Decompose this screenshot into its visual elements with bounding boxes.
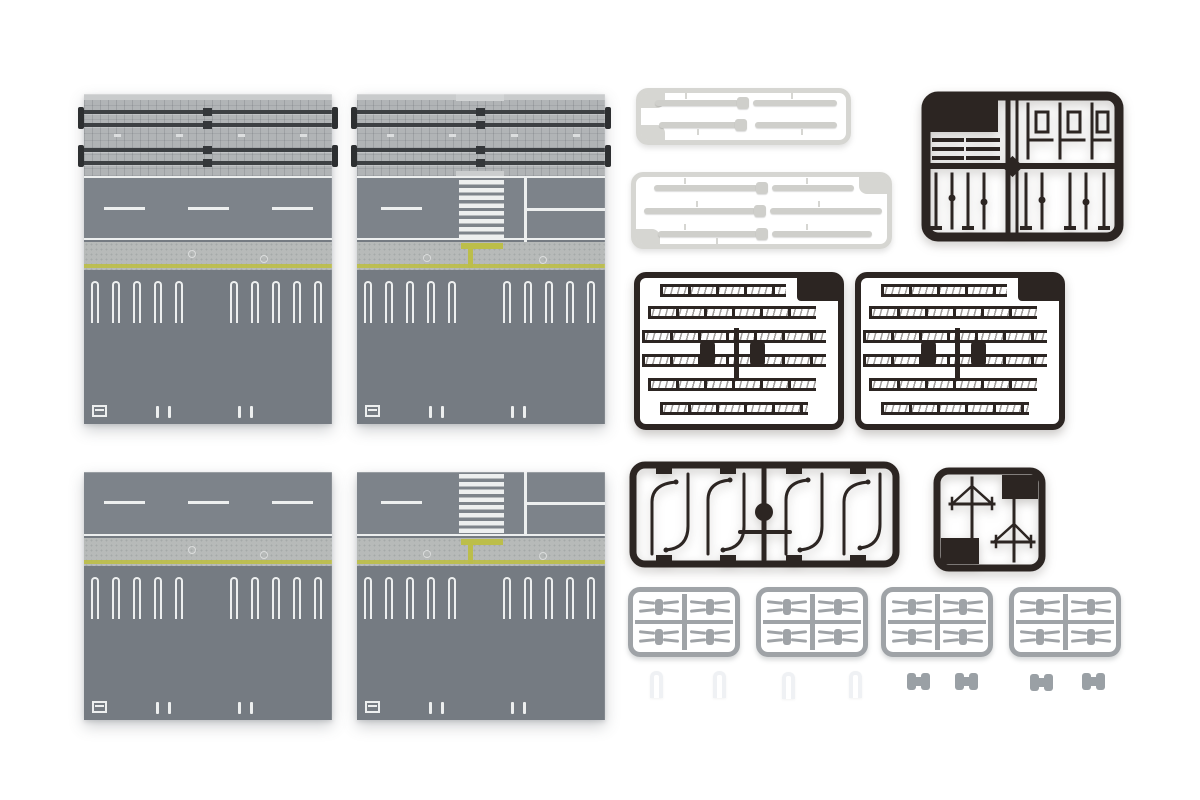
clip-arm <box>689 638 705 642</box>
clip-part <box>766 626 808 648</box>
clip-arm <box>942 600 958 604</box>
guardrail-connector <box>735 119 747 131</box>
clip-arm <box>1019 608 1035 612</box>
edge-tick <box>250 702 253 714</box>
track-dash <box>176 134 183 137</box>
guardrail-part <box>755 122 837 128</box>
road-plate-tracks-crosswalk <box>357 94 605 424</box>
clip-arm <box>1094 630 1110 634</box>
clip-arm <box>790 638 806 642</box>
clip-arm <box>662 630 678 634</box>
clip-arm <box>1070 600 1086 604</box>
clip-arm <box>713 608 729 612</box>
track-dash <box>114 134 121 137</box>
fence-part-row <box>881 284 1007 297</box>
parking-stall-marking <box>272 281 280 323</box>
clip-body <box>834 599 842 615</box>
centerline-dash <box>381 207 422 210</box>
parking-stall-group <box>364 281 456 323</box>
joiner-center <box>961 677 972 686</box>
edge-tick-pair <box>156 702 171 714</box>
manhole-cover <box>539 256 547 264</box>
clip-arm <box>662 600 678 604</box>
rail-joint <box>203 121 212 129</box>
track-dash <box>573 134 580 137</box>
gray-joiner-part <box>955 673 978 690</box>
guardrail-part <box>654 185 758 191</box>
clip-part <box>689 626 731 648</box>
parking-stall-marking <box>112 281 120 323</box>
sprue-dark-accessories <box>920 90 1125 243</box>
clip-arm <box>966 600 982 604</box>
clip-body <box>783 629 791 645</box>
centerline-dash <box>188 207 229 210</box>
parking-stall-marking <box>230 281 238 323</box>
crosswalk <box>459 180 504 239</box>
edge-tick <box>511 702 514 714</box>
clip-arm <box>942 630 958 634</box>
clip-arm <box>841 630 857 634</box>
guardrail-part <box>658 231 758 237</box>
guardrail-part <box>659 122 741 128</box>
clip-body <box>706 599 714 615</box>
centerline <box>104 207 313 210</box>
rail-joiner-nub <box>332 145 338 167</box>
clip-part <box>817 596 859 618</box>
plate-info-mark <box>365 701 380 713</box>
parking-stall-marking <box>503 577 511 619</box>
between-track-marks <box>387 134 580 137</box>
clip-arm <box>766 608 782 612</box>
road-plate-straight <box>84 472 332 720</box>
parking-stall-marking <box>364 577 372 619</box>
sprue-corner-block <box>797 277 839 301</box>
rail-joiner-nub <box>605 145 611 167</box>
edge-tick <box>429 406 432 418</box>
centerline <box>104 501 313 504</box>
parking-stall-marking <box>154 577 162 619</box>
parking-stall-marking <box>524 577 532 619</box>
parking-stall-marking <box>587 577 595 619</box>
edge-tick-pair <box>511 406 526 418</box>
clip-part <box>942 626 984 648</box>
sprue-stub <box>818 201 820 207</box>
joiner-center <box>913 677 924 686</box>
parking-lot <box>357 566 605 720</box>
plate-info-mark <box>92 701 107 713</box>
sprue-corner-gusset <box>636 229 660 244</box>
clip-body <box>959 629 967 645</box>
edge-tick <box>156 406 159 418</box>
clip-arm <box>891 638 907 642</box>
edge-tick <box>523 702 526 714</box>
clip-arm <box>1043 600 1059 604</box>
manhole-cover <box>188 250 196 258</box>
street-section <box>84 472 332 720</box>
edge-tick <box>441 406 444 418</box>
rail-joiner-nub <box>78 107 84 129</box>
track-section <box>84 94 332 176</box>
track-dash <box>387 134 394 137</box>
sprue-stub <box>684 224 686 230</box>
clip-arm <box>1070 608 1086 612</box>
parking-stall-marking <box>251 281 259 323</box>
guardrail-connector <box>737 97 749 109</box>
clip-arm <box>713 638 729 642</box>
track-dash <box>238 134 245 137</box>
clip-arm <box>841 608 857 612</box>
parking-stall-marking <box>448 577 456 619</box>
sprue-stub <box>685 93 687 99</box>
clip-arm <box>915 608 931 612</box>
rail-joint <box>476 108 485 116</box>
sprue-stub <box>801 129 803 135</box>
clip-part <box>942 596 984 618</box>
clip-arm <box>891 608 907 612</box>
parking-stall-marking <box>524 281 532 323</box>
gray-joiner-part <box>1030 674 1053 691</box>
clip-arm <box>1043 608 1059 612</box>
clip-arm <box>689 600 705 604</box>
clip-arm <box>1070 638 1086 642</box>
sprue-dark-fence-lattice <box>634 272 844 430</box>
clip-body <box>655 599 663 615</box>
gray-joiner-part <box>907 673 930 690</box>
parking-stall-marking <box>175 281 183 323</box>
sprue-dark-lamp-posts <box>628 460 901 569</box>
clip-arm <box>1019 630 1035 634</box>
sprue-dark-utility-poles <box>932 466 1047 573</box>
sprue-stub <box>791 93 793 99</box>
tactile-paving-line <box>84 560 332 564</box>
parking-stall-marking <box>91 577 99 619</box>
guardrail-connector <box>756 228 768 240</box>
road-plate-crosswalk <box>357 472 605 720</box>
sprue-corner-gusset <box>859 177 887 194</box>
manhole-cover <box>260 255 268 263</box>
clip-arm <box>689 630 705 634</box>
edge-tick <box>441 702 444 714</box>
guardrail-connector <box>756 182 768 194</box>
clip-arm <box>841 600 857 604</box>
clip-arm <box>1070 630 1086 634</box>
clip-part <box>689 596 731 618</box>
clip-arm <box>713 600 729 604</box>
sidewalk <box>84 538 332 566</box>
parking-lot <box>357 270 605 424</box>
clip-arm <box>766 630 782 634</box>
clip-arm <box>1019 600 1035 604</box>
clip-arm <box>817 630 833 634</box>
sprue-runner <box>888 620 986 624</box>
sidewalk <box>357 538 605 566</box>
guardrail-part <box>772 231 872 237</box>
fence-part-row <box>869 306 1037 319</box>
rail-joiner-nub <box>351 107 357 129</box>
clip-arm <box>817 600 833 604</box>
edge-tick <box>168 702 171 714</box>
clip-part <box>891 596 933 618</box>
track-dash <box>300 134 307 137</box>
parking-stall-group <box>503 577 595 619</box>
edge-tick <box>238 702 241 714</box>
rail-joiner-nub <box>78 145 84 167</box>
parking-stall-marking <box>230 577 238 619</box>
edge-tick-pair <box>429 702 444 714</box>
sprue-stub <box>806 178 808 184</box>
sprue-stub <box>806 224 808 230</box>
sprue-stub <box>684 178 686 184</box>
clip-body <box>783 599 791 615</box>
centerline-dash <box>104 501 145 504</box>
clip-arm <box>638 608 654 612</box>
manhole-cover <box>539 552 547 560</box>
edge-tick <box>250 406 253 418</box>
fence-part-row <box>869 378 1037 391</box>
clip-arm <box>662 638 678 642</box>
rail-joiner-nub <box>351 145 357 167</box>
clip-arm <box>689 608 705 612</box>
clip-body <box>908 629 916 645</box>
parking-stall-marking <box>427 577 435 619</box>
parking-stall-group <box>91 281 183 323</box>
clip-arm <box>638 638 654 642</box>
guardrail-part <box>772 185 854 191</box>
clip-body <box>1036 599 1044 615</box>
parking-stall-marking <box>545 577 553 619</box>
sprue-stub <box>716 238 718 244</box>
edge-tick <box>156 702 159 714</box>
product-photo <box>0 0 1200 800</box>
lane-line-horizontal <box>527 502 605 505</box>
rail-joint <box>476 121 485 129</box>
clip-arm <box>891 600 907 604</box>
manhole-cover <box>188 546 196 554</box>
clip-arm <box>942 608 958 612</box>
crosswalk <box>459 474 504 533</box>
fence-part-row <box>648 306 816 319</box>
edge-tick-pair <box>238 702 253 714</box>
edge-tick <box>168 406 171 418</box>
white-clip-part <box>782 672 795 699</box>
parking-stall-marking <box>545 281 553 323</box>
fence-post-part <box>750 340 765 367</box>
clip-arm <box>1043 630 1059 634</box>
clip-arm <box>915 630 931 634</box>
street-section <box>357 176 605 424</box>
clip-arm <box>942 638 958 642</box>
clip-part <box>1070 596 1112 618</box>
centerline-dash <box>104 207 145 210</box>
parking-stall-marking <box>427 281 435 323</box>
tactile-paving-line <box>357 264 605 268</box>
clip-part <box>766 596 808 618</box>
white-clip-part <box>713 671 726 698</box>
parking-stall-group <box>503 281 595 323</box>
clip-part <box>1019 596 1061 618</box>
fence-post-part <box>700 340 715 367</box>
crossing-strip <box>456 94 504 101</box>
clip-arm <box>638 630 654 634</box>
clip-arm <box>662 608 678 612</box>
parking-lot <box>84 270 332 424</box>
parking-stall-group <box>230 577 322 619</box>
joiner-center <box>1088 677 1099 686</box>
parking-stall-marking <box>175 577 183 619</box>
centerline-dash <box>188 501 229 504</box>
parking-stall-marking <box>503 281 511 323</box>
parking-stall-marking <box>112 577 120 619</box>
clip-body <box>959 599 967 615</box>
edge-tick-pair <box>238 406 253 418</box>
guardrail-part <box>753 100 837 106</box>
white-clip-part <box>849 671 862 698</box>
parking-stall-marking <box>251 577 259 619</box>
rail-joint <box>476 159 485 167</box>
parking-stall-marking <box>314 577 322 619</box>
clip-part <box>817 626 859 648</box>
clip-arm <box>966 638 982 642</box>
tactile-paving-line <box>84 264 332 268</box>
guardrail-part <box>655 100 739 106</box>
edge-tick-pair <box>511 702 526 714</box>
track-section <box>357 94 605 176</box>
guardrail-connector <box>754 205 766 217</box>
sprue-gray-clips <box>756 587 868 657</box>
sidewalk <box>357 242 605 270</box>
sprue-white-guardrail-small <box>636 88 851 145</box>
manhole-cover <box>260 551 268 559</box>
parking-lot <box>84 566 332 720</box>
clip-arm <box>817 638 833 642</box>
clip-arm <box>1019 638 1035 642</box>
clip-part <box>638 626 680 648</box>
clip-arm <box>966 608 982 612</box>
street-section <box>84 176 332 424</box>
sprue-gray-clips <box>628 587 740 657</box>
clip-arm <box>638 600 654 604</box>
fence-part-row <box>648 378 816 391</box>
centerline-dash <box>381 501 422 504</box>
sprue-runner <box>1016 620 1114 624</box>
rail-joint <box>476 146 485 154</box>
edge-tick <box>429 702 432 714</box>
clip-body <box>706 629 714 645</box>
clip-body <box>1087 599 1095 615</box>
lane-line-horizontal <box>527 208 605 211</box>
clip-arm <box>1094 638 1110 642</box>
fence-part-row <box>660 402 808 415</box>
fence-part-row <box>660 284 786 297</box>
rail-joint <box>203 159 212 167</box>
sprue-gray-clips <box>1009 587 1121 657</box>
parking-stall-marking <box>448 281 456 323</box>
parking-stall-marking <box>406 281 414 323</box>
track-bed-edge <box>84 94 332 100</box>
clip-arm <box>891 630 907 634</box>
parking-stall-marking <box>566 577 574 619</box>
clip-arm <box>966 630 982 634</box>
edge-tick-pair <box>429 406 444 418</box>
tactile-paving-line <box>357 560 605 564</box>
street-section <box>357 472 605 720</box>
guardrail-part <box>770 208 882 214</box>
clip-body <box>655 629 663 645</box>
parking-stall-marking <box>587 281 595 323</box>
road <box>84 472 332 536</box>
parking-stall-marking <box>385 281 393 323</box>
centerline-dash <box>272 501 313 504</box>
clip-body <box>1087 629 1095 645</box>
clip-arm <box>1094 600 1110 604</box>
sprue-runner <box>635 620 733 624</box>
clip-arm <box>790 608 806 612</box>
sprue-gray-clips <box>881 587 993 657</box>
clip-part <box>1019 626 1061 648</box>
parking-stall-group <box>230 281 322 323</box>
track-dash <box>449 134 456 137</box>
clip-body <box>908 599 916 615</box>
sprue-corner-block <box>1018 277 1060 301</box>
sidewalk <box>84 242 332 270</box>
sprue-dark-fence-lattice <box>855 272 1065 430</box>
clip-body <box>1036 629 1044 645</box>
track-dash <box>511 134 518 137</box>
clip-arm <box>915 600 931 604</box>
clip-body <box>834 629 842 645</box>
parking-stall-marking <box>133 577 141 619</box>
rail-joint <box>203 146 212 154</box>
parking-stall-marking <box>293 281 301 323</box>
fence-post-part <box>971 340 986 367</box>
sprue-stub <box>697 129 699 135</box>
rail-joiner-nub <box>605 107 611 129</box>
clip-part <box>891 626 933 648</box>
road <box>357 176 605 240</box>
parking-stall-marking <box>364 281 372 323</box>
road-plate-tracks-straight <box>84 94 332 424</box>
road <box>357 472 605 536</box>
parking-stall-marking <box>293 577 301 619</box>
edge-tick-pair <box>156 406 171 418</box>
fence-part-row <box>881 402 1029 415</box>
sprue-stub <box>696 201 698 207</box>
guardrail-part <box>644 208 756 214</box>
centerline-dash <box>272 207 313 210</box>
manhole-cover <box>423 254 431 262</box>
clip-arm <box>713 630 729 634</box>
parking-stall-marking <box>133 281 141 323</box>
gray-joiner-part <box>1082 673 1105 690</box>
clip-arm <box>766 638 782 642</box>
clip-part <box>1070 626 1112 648</box>
plate-info-mark <box>365 405 380 417</box>
edge-tick <box>511 406 514 418</box>
parking-stall-marking <box>385 577 393 619</box>
parking-stall-marking <box>406 577 414 619</box>
clip-arm <box>817 608 833 612</box>
parking-stall-marking <box>566 281 574 323</box>
clip-arm <box>841 638 857 642</box>
clip-arm <box>766 600 782 604</box>
edge-tick <box>238 406 241 418</box>
parking-stall-marking <box>314 281 322 323</box>
clip-arm <box>1043 638 1059 642</box>
rail-joint <box>203 108 212 116</box>
manhole-cover <box>423 550 431 558</box>
clip-arm <box>790 600 806 604</box>
sprue-white-guardrail-large <box>631 172 892 249</box>
